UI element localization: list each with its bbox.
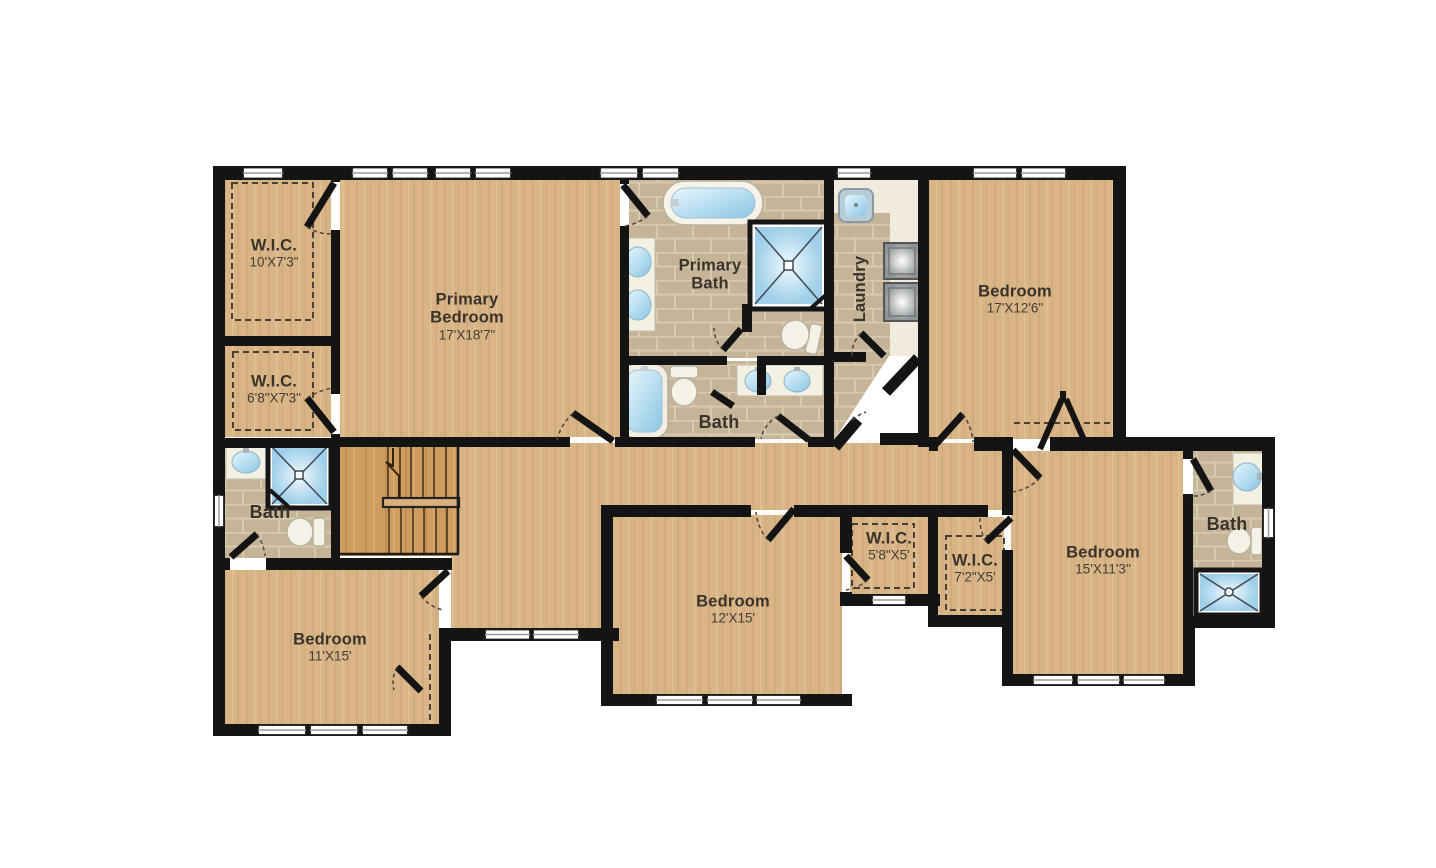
washer <box>884 243 920 279</box>
staircase <box>337 446 459 556</box>
left-bath-vanity <box>226 446 268 479</box>
laundry-sink <box>839 189 873 222</box>
middle-bath-double-vanity <box>737 365 823 396</box>
floor-plan-drawing <box>0 0 1436 868</box>
right-bath-shower <box>1196 570 1262 615</box>
middle-bath-toilet <box>670 366 698 406</box>
dryer <box>884 283 920 321</box>
right-bath-vanity <box>1233 453 1265 505</box>
primary-bath-shower <box>750 222 827 309</box>
left-bath-shower <box>268 443 331 508</box>
left-bath-toilet <box>287 518 325 546</box>
right-bath-toilet <box>1227 527 1262 555</box>
primary-bath-tub <box>663 181 763 225</box>
floor-plan: W.I.C. 10'X7'3" W.I.C. 6'8"X7'3" Bath Be… <box>0 0 1436 868</box>
